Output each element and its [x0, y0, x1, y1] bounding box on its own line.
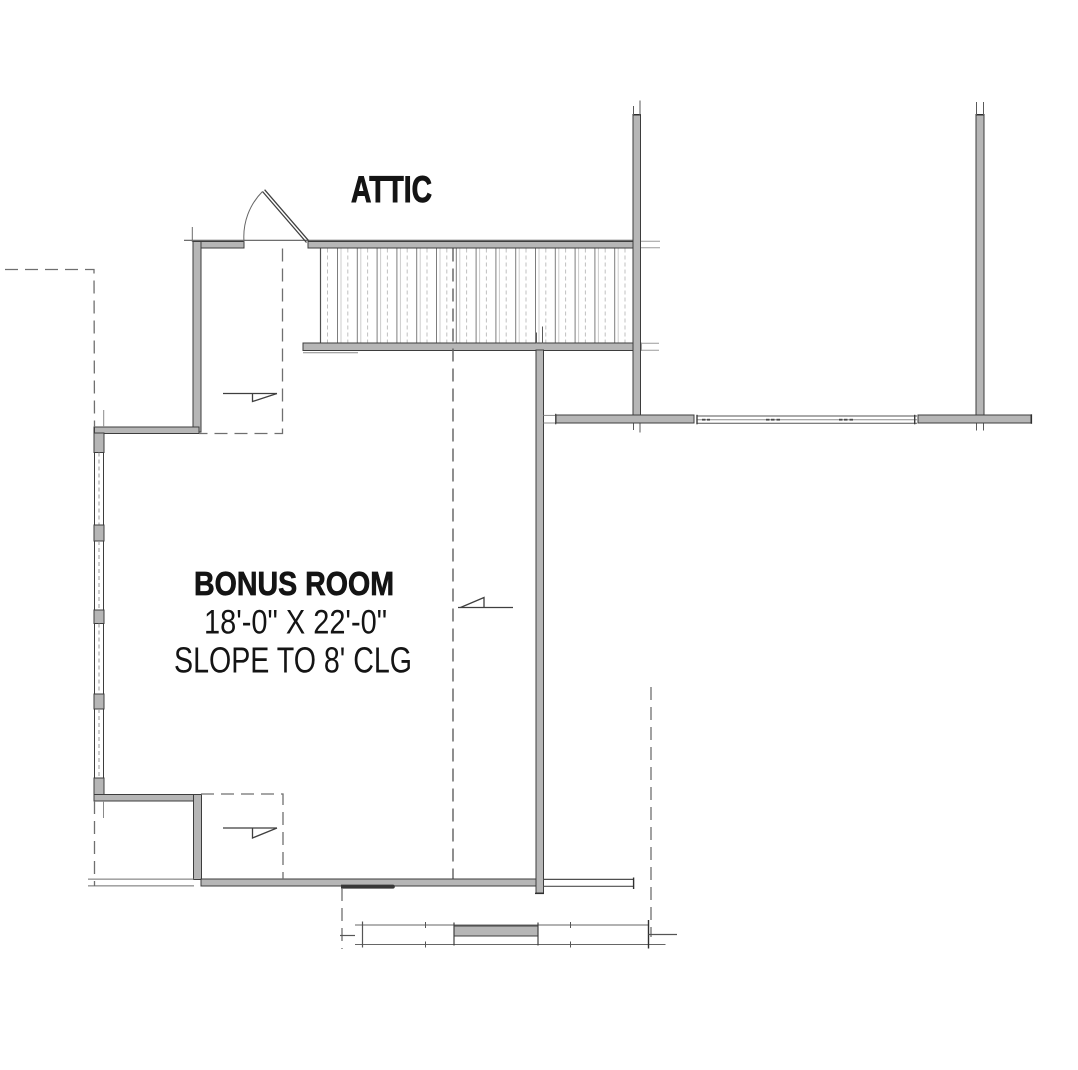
svg-text:ATTIC: ATTIC: [351, 169, 432, 210]
svg-text:BONUS ROOM: BONUS ROOM: [194, 565, 394, 602]
svg-text:SLOPE TO 8' CLG: SLOPE TO 8' CLG: [174, 640, 412, 681]
svg-text:18'-0" X 22'-0": 18'-0" X 22'-0": [204, 604, 387, 642]
